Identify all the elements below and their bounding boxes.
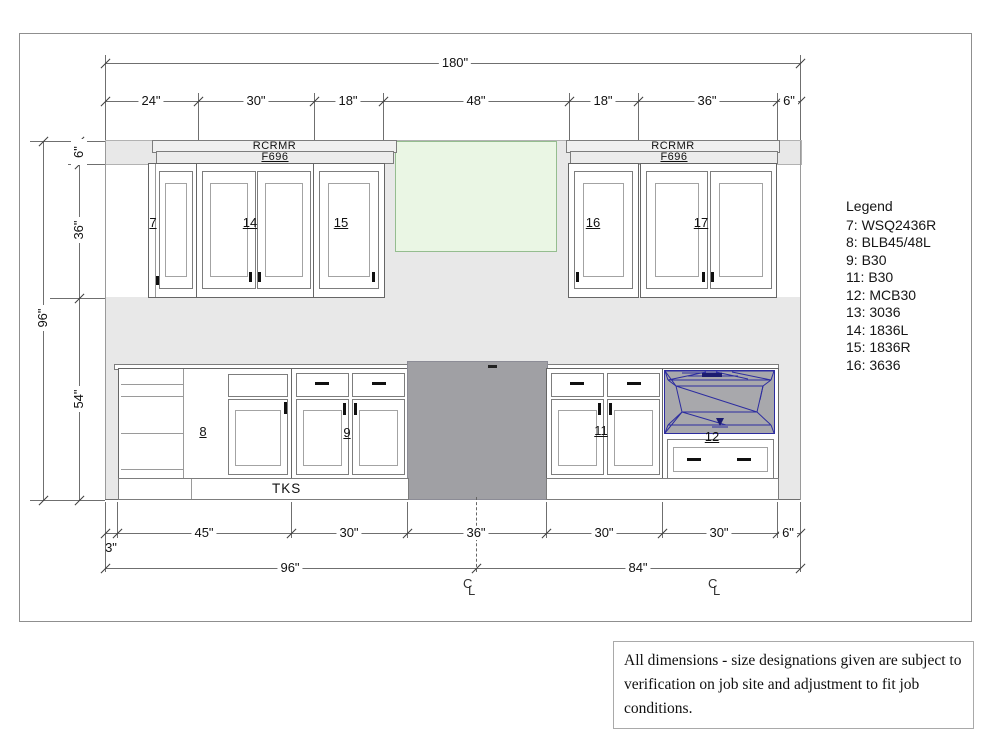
dim-seg-6: 6"	[780, 94, 798, 108]
legend-item: 14: 1836L	[846, 322, 936, 340]
cabinet-15-label: 15	[331, 216, 351, 230]
cabinet-9-label: 9	[339, 426, 355, 440]
dim-line-left-segments	[79, 141, 80, 500]
dim-base-30b: 30"	[591, 526, 616, 540]
window	[395, 141, 557, 252]
legend: Legend 7: WSQ2436R 8: BLB45/48L 9: B30 1…	[846, 198, 936, 374]
wall-cabinet-7	[148, 163, 198, 298]
dim-seg-30: 30"	[243, 94, 268, 108]
legend-item: 16: 3636	[846, 357, 936, 375]
toe-kick-left	[118, 478, 409, 500]
dim-seg-36: 36"	[694, 94, 719, 108]
dim-seg-54v: 54"	[71, 386, 87, 412]
cabinet-14-label: 14	[240, 216, 260, 230]
legend-title: Legend	[846, 198, 936, 216]
cabinet-11-label: 11	[591, 424, 611, 438]
dim-line-base-totals	[105, 568, 800, 569]
cabinet-7-label: 7	[146, 216, 160, 230]
dim-seg-48: 48"	[463, 94, 488, 108]
wall-cabinet-17	[640, 163, 777, 298]
dim-base-30c: 30"	[706, 526, 731, 540]
base-cabinet-9	[291, 368, 409, 480]
centerline-symbol-microwave: C L	[708, 577, 724, 599]
dim-total-width: 180"	[439, 56, 471, 70]
dim-seg-24: 24"	[138, 94, 163, 108]
disclaimer-note: All dimensions - size designations given…	[613, 641, 974, 729]
legend-item: 15: 1836R	[846, 339, 936, 357]
cabinet-17-label: 17	[691, 216, 711, 230]
legend-item: 9: B30	[846, 252, 936, 270]
legend-item: 13: 3036	[846, 304, 936, 322]
wall-cabinet-15	[313, 163, 385, 298]
dim-seg-36v: 36"	[71, 217, 87, 243]
backsplash-wall	[105, 297, 800, 368]
dim-base-45: 45"	[191, 526, 216, 540]
wall-right-edge	[800, 141, 801, 500]
legend-item: 7: WSQ2436R	[846, 217, 936, 235]
dim-total-height: 96"	[35, 305, 51, 331]
dim-seg-18: 18"	[335, 94, 360, 108]
legend-item: 11: B30	[846, 269, 936, 287]
legend-item: 8: BLB45/48L	[846, 234, 936, 252]
dim-total-84: 84"	[625, 561, 650, 575]
legend-item: 12: MCB30	[846, 287, 936, 305]
toe-kick-label: TKS	[272, 481, 301, 496]
wall-right-filler	[777, 368, 800, 500]
dim-base-6: 6"	[779, 526, 797, 540]
dim-base-3: 3"	[102, 541, 120, 555]
microwave-wireframe	[664, 370, 775, 434]
cabinet-8-label: 8	[195, 425, 211, 439]
wall-cabinet-14	[196, 163, 315, 298]
centerline-symbol-range: C L	[463, 577, 479, 599]
toe-kick-right	[546, 478, 779, 500]
dim-base-30: 30"	[336, 526, 361, 540]
wall-cabinet-16	[568, 163, 639, 298]
wall-left-filler	[105, 368, 118, 500]
cabinet-16-label: 16	[583, 216, 603, 230]
dim-seg-6v: 6"	[71, 139, 87, 165]
dim-seg-18b: 18"	[590, 94, 615, 108]
dim-total-96: 96"	[277, 561, 302, 575]
wall-left-edge	[105, 141, 106, 500]
range-appliance	[407, 361, 548, 500]
range-control	[488, 365, 497, 368]
dim-base-36: 36"	[463, 526, 488, 540]
cabinet-elevation-drawing: RCRMR F696 RCRMR F696 7 14 15	[0, 0, 990, 739]
cabinet-12-label: 12	[702, 430, 722, 444]
